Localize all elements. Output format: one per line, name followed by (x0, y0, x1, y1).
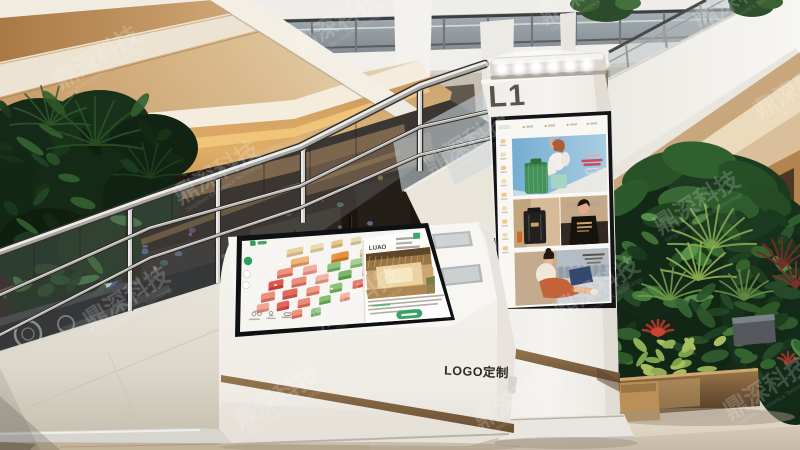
svg-text:LOGO定制: LOGO定制 (444, 363, 509, 381)
svg-text:LUAO: LUAO (369, 244, 387, 252)
svg-text:L1: L1 (487, 79, 527, 114)
